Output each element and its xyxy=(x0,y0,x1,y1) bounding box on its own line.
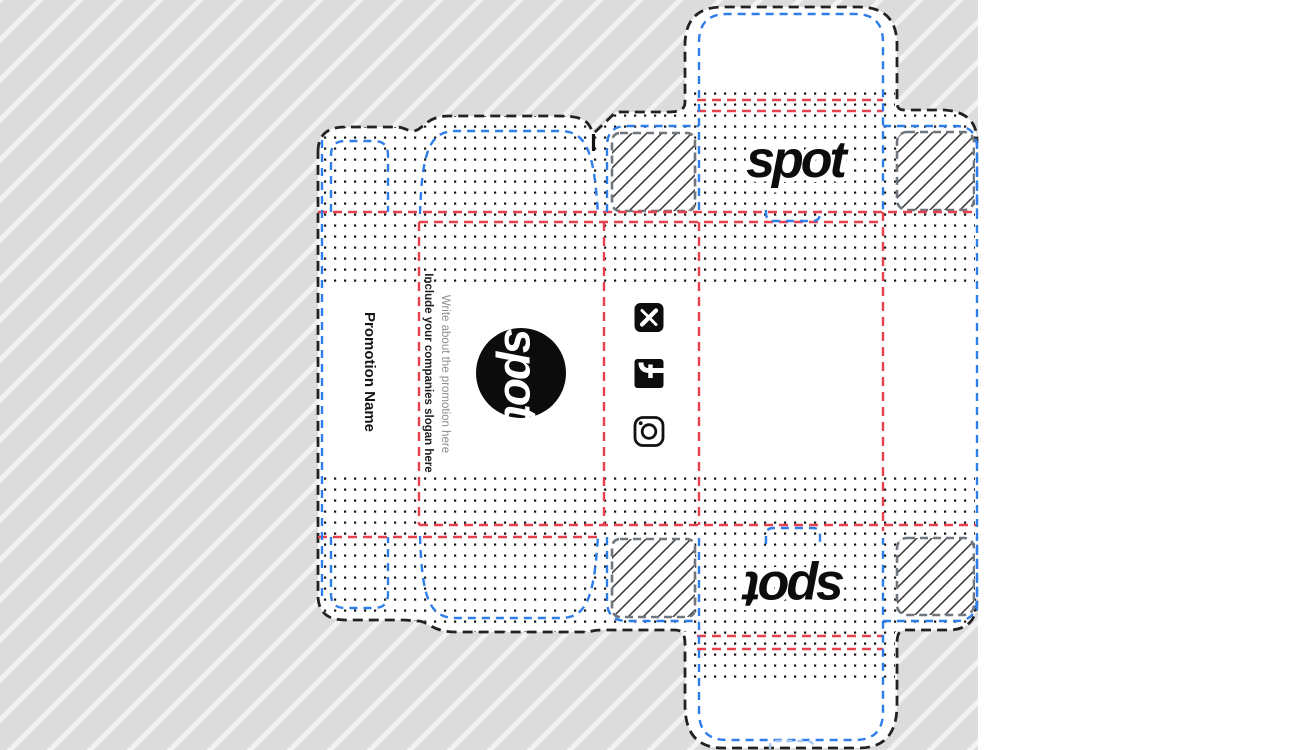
logo-badge-text: spot xyxy=(495,328,547,421)
logo-top[interactable]: spot xyxy=(746,131,849,189)
slogan-light-label[interactable]: Write about the promotion here xyxy=(439,295,451,453)
packaging-dieline-canvas: spot spot Promotion Name Include your co… xyxy=(0,0,1300,750)
logo-bottom[interactable]: spot xyxy=(740,560,843,618)
promotion-name-label[interactable]: Promotion Name xyxy=(361,312,378,432)
social-icons xyxy=(635,303,664,446)
glue-flap-bottom-left xyxy=(612,539,695,617)
glue-flap-top-left xyxy=(612,133,695,211)
instagram-icon[interactable] xyxy=(635,418,663,446)
x-icon[interactable] xyxy=(635,303,664,332)
slogan-bold-label[interactable]: Include your companies slogan here xyxy=(422,273,434,472)
facebook-icon[interactable] xyxy=(635,359,664,388)
glue-flap-bottom-right xyxy=(897,538,974,615)
glue-flap-top-right xyxy=(897,132,974,210)
